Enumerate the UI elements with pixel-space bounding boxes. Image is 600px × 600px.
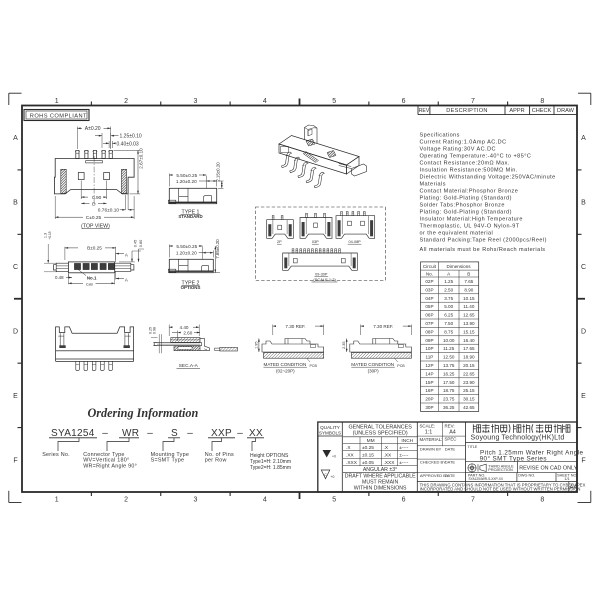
svg-text:2.50: 2.50 — [444, 287, 453, 292]
svg-text:1.20±0.20: 1.20±0.20 — [176, 179, 197, 184]
svg-text:18.75: 18.75 — [443, 388, 455, 393]
svg-text:±0.05: ±0.05 — [362, 460, 374, 466]
svg-text:INCORPORATED AND SHOULD NOT BE: INCORPORATED AND SHOULD NOT BE USED WITH… — [420, 487, 581, 492]
svg-text:(30P): (30P) — [368, 369, 380, 374]
svg-text:PCB: PCB — [397, 364, 405, 368]
svg-text:Series No.: Series No. — [42, 452, 70, 458]
svg-text:0.90: 0.90 — [92, 195, 102, 201]
svg-text:1.95: 1.95 — [254, 342, 258, 349]
svg-text:WR: WR — [122, 428, 139, 439]
svg-text:MM: MM — [367, 438, 375, 444]
svg-text:5.50±0.25: 5.50±0.25 — [176, 244, 197, 249]
svg-text:04-08P: 04-08P — [348, 240, 361, 244]
svg-text:7.50: 7.50 — [444, 321, 453, 326]
svg-text:All materials must be Rohs/Rea: All materials must be Rohs/Reach materia… — [420, 247, 546, 253]
svg-text:SEC.A-A: SEC.A-A — [179, 363, 199, 369]
svg-text:SYA1254: SYA1254 — [51, 428, 95, 439]
svg-text:A: A — [125, 277, 128, 282]
svg-text:13.75: 13.75 — [443, 363, 455, 368]
svg-text:.XXX: .XXX — [346, 460, 358, 466]
svg-text:30P: 30P — [425, 405, 433, 410]
svg-text:03P: 03P — [312, 240, 319, 244]
svg-text:A±0.20: A±0.20 — [85, 126, 101, 132]
svg-text:36.25: 36.25 — [443, 405, 455, 410]
svg-text:C±B: C±B — [86, 282, 94, 286]
svg-text:Plating: Gold-Plating (Standar: Plating: Gold-Plating (Standard) — [420, 196, 512, 202]
svg-text:SYMBOLS: SYMBOLS — [319, 430, 341, 435]
svg-text:0.48: 0.48 — [55, 275, 64, 280]
svg-text:±0.15: ±0.15 — [362, 452, 374, 458]
svg-text:3.75: 3.75 — [444, 296, 453, 301]
svg-text:06P: 06P — [425, 313, 433, 318]
svg-text:No.1: No.1 — [87, 276, 97, 281]
svg-text:QUALITY: QUALITY — [320, 425, 340, 430]
svg-text:6: 6 — [402, 98, 406, 105]
svg-text:2.67±0.10: 2.67±0.10 — [138, 148, 143, 169]
svg-text:1.3: 1.3 — [44, 233, 48, 238]
svg-text:±----: ±---- — [399, 445, 408, 451]
svg-text:(UNLESS SPECIFIED): (UNLESS SPECIFIED) — [353, 431, 408, 437]
svg-text:Operating Temperature:-40°C to: Operating Temperature:-40°C to +85°C — [420, 154, 532, 160]
svg-text:OPTIONS: OPTIONS — [181, 285, 201, 290]
svg-text:C: C — [581, 264, 586, 271]
svg-text:+0: +0 — [331, 475, 335, 479]
svg-text:Dimensions: Dimensions — [447, 264, 472, 269]
svg-text:–: – — [147, 428, 153, 439]
svg-text:20P: 20P — [425, 397, 433, 402]
svg-text:02P: 02P — [425, 279, 433, 284]
svg-text:F: F — [581, 457, 585, 464]
svg-text:12.65: 12.65 — [463, 313, 475, 318]
svg-text:23.90: 23.90 — [463, 380, 475, 385]
svg-text:2.15±0.20: 2.15±0.20 — [216, 162, 221, 182]
svg-text:8.90: 8.90 — [464, 287, 473, 292]
svg-text:per Row: per Row — [205, 458, 227, 464]
svg-text:DRAWN BY: DRAWN BY — [420, 446, 442, 451]
svg-text:DRAW: DRAW — [557, 108, 575, 114]
svg-text:07P: 07P — [425, 321, 433, 326]
svg-text:03P: 03P — [425, 287, 433, 292]
svg-text:WR=Right Angle 90°: WR=Right Angle 90° — [83, 464, 137, 470]
svg-text:WITHIN DIMENSIONS: WITHIN DIMENSIONS — [354, 485, 407, 491]
svg-text:ANGULAR ±3°: ANGULAR ±3° — [363, 467, 397, 473]
svg-text:Thermoplastic, UL 94V-O Nylon-: Thermoplastic, UL 94V-O Nylon-9T — [420, 224, 520, 230]
svg-text:Type2=H: 1.85mm: Type2=H: 1.85mm — [250, 465, 291, 471]
svg-text:12.50: 12.50 — [443, 355, 455, 360]
svg-text:TITLE: TITLE — [468, 445, 478, 449]
svg-text:DATE: DATE — [445, 460, 456, 465]
svg-text:INCH: INCH — [401, 438, 413, 444]
svg-text:1.25±0.10: 1.25±0.10 — [120, 134, 142, 140]
svg-text:DWG NO.: DWG NO. — [518, 474, 535, 478]
svg-text:0.45: 0.45 — [134, 240, 138, 247]
svg-text:09-30P: 09-30P — [315, 272, 328, 276]
svg-text:–: – — [102, 428, 108, 439]
svg-text:15.15: 15.15 — [463, 329, 475, 334]
svg-text:.X: .X — [346, 445, 351, 451]
svg-text:05P: 05P — [425, 304, 433, 309]
svg-text:.XXX: .XXX — [384, 460, 396, 466]
svg-text:8: 8 — [540, 98, 544, 105]
svg-text:90° SMT Type Series: 90° SMT Type Series — [480, 454, 547, 462]
svg-text:SPEC: SPEC — [445, 437, 457, 442]
svg-text:(SCALE 1:2): (SCALE 1:2) — [313, 277, 336, 282]
svg-text:CHECKED BY: CHECKED BY — [420, 460, 446, 465]
svg-text:11.25: 11.25 — [443, 346, 455, 351]
svg-text:6.25: 6.25 — [444, 313, 453, 318]
svg-text:MATED CONDITION: MATED CONDITION — [264, 362, 307, 367]
svg-text:1:1: 1:1 — [425, 430, 433, 436]
svg-text:16P: 16P — [425, 388, 433, 393]
svg-text:4.40: 4.40 — [180, 325, 189, 330]
svg-text:E: E — [13, 393, 18, 400]
svg-text:17.50: 17.50 — [443, 380, 455, 385]
svg-text:REVISE ON CAD ONLY: REVISE ON CAD ONLY — [519, 465, 577, 471]
svg-text:–: – — [187, 428, 193, 439]
svg-text:PCB: PCB — [310, 364, 318, 368]
svg-text:25.15: 25.15 — [463, 388, 475, 393]
svg-text:10.00: 10.00 — [443, 338, 455, 343]
svg-text:04P: 04P — [425, 296, 433, 301]
svg-text:10P: 10P — [425, 346, 433, 351]
svg-text:XXP: XXP — [211, 428, 232, 439]
svg-text:A: A — [13, 135, 18, 142]
svg-text:16.40: 16.40 — [463, 338, 475, 343]
svg-text:+0: +0 — [332, 455, 336, 459]
svg-text:5: 5 — [332, 497, 336, 504]
svg-text:1.25: 1.25 — [444, 279, 453, 284]
svg-text:Contact Resistance:20mΩ Max.: Contact Resistance:20mΩ Max. — [420, 161, 510, 167]
svg-text:3: 3 — [193, 497, 197, 504]
svg-text:C: C — [13, 264, 18, 271]
svg-text:±0.25: ±0.25 — [362, 445, 374, 451]
svg-text:DESCRIPTION: DESCRIPTION — [446, 108, 488, 114]
svg-text:17.65: 17.65 — [463, 346, 475, 351]
svg-text:D: D — [581, 328, 586, 335]
svg-text:09P: 09P — [425, 338, 433, 343]
svg-text:Insulation Resistance:500MΩ Mi: Insulation Resistance:500MΩ Min. — [420, 168, 518, 174]
svg-text:0.76±0.10: 0.76±0.10 — [98, 208, 120, 214]
svg-text:SCALE:: SCALE: — [420, 424, 436, 429]
svg-text:B: B — [13, 200, 18, 207]
svg-text:GENERAL TOLERANCES: GENERAL TOLERANCES — [348, 425, 412, 431]
svg-text:C±0.25: C±0.25 — [86, 215, 102, 221]
svg-text:F: F — [13, 457, 17, 464]
svg-text:7.85±0.20: 7.85±0.20 — [215, 239, 220, 259]
svg-text:DATE: DATE — [445, 473, 456, 478]
svg-text:1/1: 1/1 — [564, 477, 569, 481]
svg-text:APPR: APPR — [509, 108, 524, 114]
svg-text:11.40: 11.40 — [463, 304, 475, 309]
svg-text:0.40±0.03: 0.40±0.03 — [117, 141, 139, 147]
svg-text:22.65: 22.65 — [463, 371, 475, 376]
svg-text:DATE: DATE — [445, 446, 456, 451]
svg-text:5.50±0.25: 5.50±0.25 — [176, 173, 197, 178]
svg-text:STANDARD: STANDARD — [178, 214, 202, 219]
svg-text:A: A — [125, 252, 128, 257]
svg-text:No.: No. — [426, 271, 433, 276]
svg-text:Voltage Rating:30V AC.DC: Voltage Rating:30V AC.DC — [420, 147, 496, 153]
svg-text:XX: XX — [249, 428, 263, 439]
svg-text:.XX: .XX — [346, 452, 355, 458]
svg-text:2.60: 2.60 — [183, 330, 192, 335]
svg-text:MATED CONDITION: MATED CONDITION — [351, 362, 394, 367]
svg-text:5: 5 — [332, 98, 336, 105]
svg-text:D: D — [13, 328, 18, 335]
svg-text:Standard Packing:Tape Reel (20: Standard Packing:Tape Reel (2000pcs/Reel… — [420, 238, 547, 244]
svg-text:–: – — [237, 428, 243, 439]
svg-text:15P: 15P — [425, 380, 433, 385]
svg-text:2P: 2P — [277, 240, 282, 244]
svg-text:E: E — [581, 393, 586, 400]
svg-text:C: C — [324, 473, 327, 477]
svg-text:ROHS COMPLIANT: ROHS COMPLIANT — [30, 114, 87, 120]
svg-text:1: 1 — [55, 497, 59, 504]
svg-text:8: 8 — [540, 497, 544, 504]
svg-text:11P: 11P — [426, 355, 434, 360]
svg-text:S: S — [171, 428, 178, 439]
svg-text:REV: REV — [419, 108, 430, 114]
svg-text:30.15: 30.15 — [463, 397, 475, 402]
svg-text:Insulator Material:High Temper: Insulator Material:High Temperature — [420, 217, 523, 223]
svg-text:7.30 REF.: 7.30 REF. — [285, 324, 305, 329]
svg-text:2: 2 — [124, 98, 128, 105]
svg-text:B±0.25: B±0.25 — [87, 246, 102, 251]
svg-text:2: 2 — [124, 497, 128, 504]
svg-text:Specifications: Specifications — [420, 133, 460, 139]
svg-text:SYA1254WR-S-XXP-XX: SYA1254WR-S-XXP-XX — [469, 477, 504, 481]
svg-text:4: 4 — [263, 497, 267, 504]
svg-text:A4: A4 — [569, 484, 577, 491]
svg-text:S=SMT Type: S=SMT Type — [151, 458, 185, 464]
svg-text:08P: 08P — [425, 329, 433, 334]
svg-text:REV:: REV: — [445, 424, 455, 429]
svg-text:Plating: Gold-Plating (Standar: Plating: Gold-Plating (Standard) — [420, 210, 512, 216]
svg-text:0.98: 0.98 — [152, 327, 156, 334]
svg-text:+0.15: +0.15 — [48, 231, 52, 239]
svg-text:Current Rating:1.0Amp AC.DC: Current Rating:1.0Amp AC.DC — [420, 140, 507, 146]
svg-text:12P: 12P — [425, 363, 433, 368]
svg-text:±----: ±---- — [399, 452, 408, 458]
svg-text:Ordering Information: Ordering Information — [88, 406, 199, 420]
svg-text:Contact Material:Phosphor Bron: Contact Material:Phosphor Bronze — [420, 189, 519, 195]
svg-text:6: 6 — [402, 497, 406, 504]
svg-text:±----: ±---- — [399, 460, 408, 466]
svg-text:Dielectric Withstanding Voltag: Dielectric Withstanding Voltage:250VAC/m… — [420, 175, 556, 181]
svg-text:or the equivalent material: or the equivalent material — [420, 231, 494, 237]
svg-text:7: 7 — [471, 497, 475, 504]
svg-text:CHECK: CHECK — [532, 108, 552, 114]
svg-text:42.65: 42.65 — [463, 405, 475, 410]
svg-text:Circuit: Circuit — [423, 264, 437, 269]
svg-text:4: 4 — [263, 98, 267, 105]
svg-text:20.15: 20.15 — [463, 363, 475, 368]
svg-text:16.25: 16.25 — [443, 371, 455, 376]
svg-text:.X: .X — [384, 445, 389, 451]
svg-text:23.75: 23.75 — [443, 397, 455, 402]
svg-text:2.35: 2.35 — [342, 342, 346, 349]
svg-text:1: 1 — [55, 98, 59, 105]
svg-text:8.75: 8.75 — [444, 329, 453, 334]
svg-text:3: 3 — [193, 98, 197, 105]
svg-text:18.90: 18.90 — [463, 355, 475, 360]
svg-text:B: B — [467, 271, 470, 276]
svg-text:13.90: 13.90 — [463, 321, 475, 326]
svg-text:0.80: 0.80 — [139, 240, 143, 247]
svg-text:1.20±0.20: 1.20±0.20 — [176, 251, 197, 256]
svg-text:A4: A4 — [449, 430, 456, 436]
svg-text:(02~20P): (02~20P) — [276, 369, 295, 374]
svg-text:7.30 REF.: 7.30 REF. — [373, 324, 393, 329]
svg-text:A: A — [581, 135, 586, 142]
svg-text:PROJECTION: PROJECTION — [488, 468, 513, 472]
svg-text:7.65: 7.65 — [464, 279, 473, 284]
svg-text:.XX: .XX — [384, 452, 393, 458]
svg-text:10.15: 10.15 — [463, 296, 475, 301]
svg-text:Materials: Materials — [420, 182, 446, 188]
svg-text:D: D — [92, 201, 96, 207]
svg-text:7: 7 — [471, 98, 475, 105]
svg-text:MATERIAL:: MATERIAL: — [420, 437, 443, 442]
svg-text:5.00: 5.00 — [444, 304, 453, 309]
svg-text:Solder Tabs:Phosphor Bronze: Solder Tabs:Phosphor Bronze — [420, 203, 505, 209]
svg-text:B: B — [581, 200, 586, 207]
svg-text:Soyoung Technology(HK)Ltd: Soyoung Technology(HK)Ltd — [471, 435, 565, 442]
svg-text:14P: 14P — [425, 371, 433, 376]
